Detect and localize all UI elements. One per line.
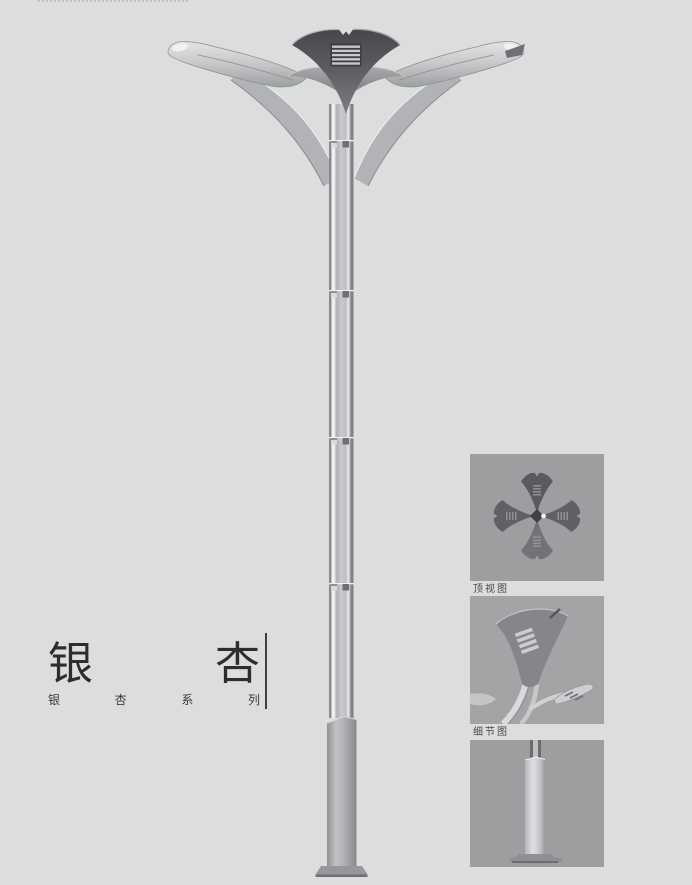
catalog-page: 银杏 银杏系列: [0, 0, 692, 885]
top-view-image: [470, 454, 604, 581]
thumbnail-top-view: 顶视图: [470, 454, 604, 596]
title-divider: [265, 633, 267, 709]
detail-view-image: [470, 596, 604, 724]
lamp-arm-right: [354, 41, 524, 186]
top-view-label: 顶视图: [470, 581, 604, 596]
thumbnail-detail-view: 细节图: [470, 596, 604, 739]
base-view-label: [470, 867, 604, 882]
pole-base-column: [327, 717, 357, 867]
lamp-pole: [329, 104, 354, 718]
detail-view-label: 细节图: [470, 724, 604, 739]
title-block: 银杏 银杏系列: [48, 642, 260, 707]
page-title: 银杏: [48, 642, 260, 686]
base-view-image: [470, 740, 604, 867]
series-subtitle: 银杏系列: [48, 694, 260, 707]
lamp-arm-left: [168, 41, 338, 186]
base-plate: [316, 866, 368, 877]
thumbnail-base-view: [470, 740, 604, 882]
